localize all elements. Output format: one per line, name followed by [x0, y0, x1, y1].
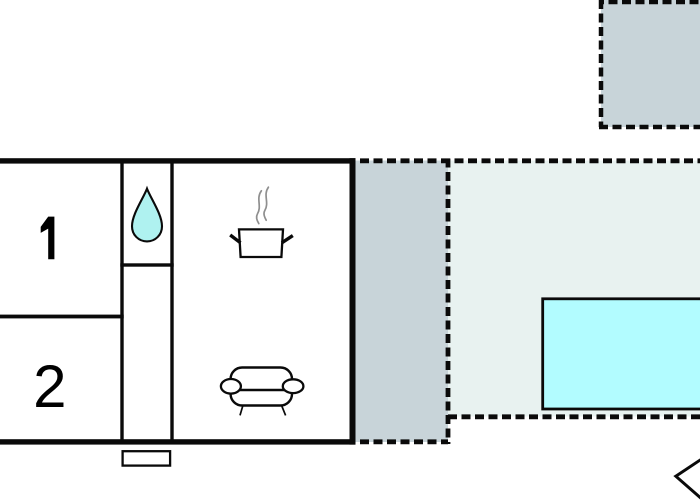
svg-text:2: 2 [33, 353, 66, 420]
